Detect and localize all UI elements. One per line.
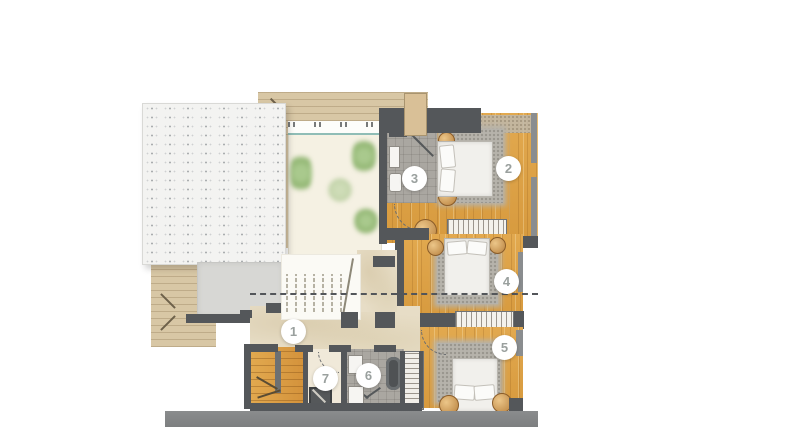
window-wall (531, 113, 537, 163)
room-marker-2: 2 (496, 156, 521, 181)
wall (329, 345, 351, 352)
wall (400, 351, 405, 408)
pillow (446, 240, 467, 256)
room-marker-4: 4 (494, 269, 519, 294)
wall (341, 312, 358, 328)
pillow (466, 240, 487, 256)
wall (266, 303, 281, 313)
room-marker-label: 5 (501, 340, 508, 355)
bathtub (386, 357, 401, 390)
wall (383, 108, 481, 133)
window-wall (531, 177, 537, 239)
floor-plan: 1 2 3 4 5 6 7 (0, 0, 800, 429)
wall (303, 349, 308, 408)
toilet (389, 173, 402, 192)
window-wall (518, 252, 523, 292)
room-marker-label: 6 (365, 368, 372, 383)
pillow (439, 144, 456, 168)
ground-line (165, 411, 538, 427)
wall (250, 344, 278, 352)
wall (379, 108, 387, 244)
wall (509, 398, 523, 412)
bedside-table (427, 239, 444, 256)
wall (375, 312, 395, 328)
wall (240, 310, 252, 318)
room-marker-label: 2 (505, 161, 512, 176)
room-marker-1: 1 (281, 319, 306, 344)
wall (244, 344, 251, 409)
room-marker-label: 7 (322, 371, 329, 386)
wall (373, 256, 395, 267)
plant (327, 177, 353, 203)
room-marker-label: 3 (411, 171, 418, 186)
room-marker-5: 5 (492, 335, 517, 360)
wall (374, 345, 396, 352)
plant (352, 136, 376, 176)
room-marker-label: 1 (290, 324, 297, 339)
plant (354, 206, 378, 236)
terrace-glazing (288, 121, 380, 135)
room-marker-7: 7 (313, 366, 338, 391)
room-marker-label: 4 (503, 274, 510, 289)
pergola-roof (142, 103, 286, 265)
timber-column (404, 93, 427, 136)
bedside-table (489, 237, 506, 254)
sink (389, 146, 400, 168)
wall (383, 228, 429, 240)
plant (290, 150, 312, 196)
section-cut-line (250, 293, 538, 295)
wall (419, 351, 423, 408)
room-marker-6: 6 (356, 363, 381, 388)
pillow (439, 168, 456, 192)
wall (295, 345, 313, 352)
wall (341, 349, 347, 408)
room-marker-3: 3 (402, 166, 427, 191)
window-wall (516, 330, 523, 356)
